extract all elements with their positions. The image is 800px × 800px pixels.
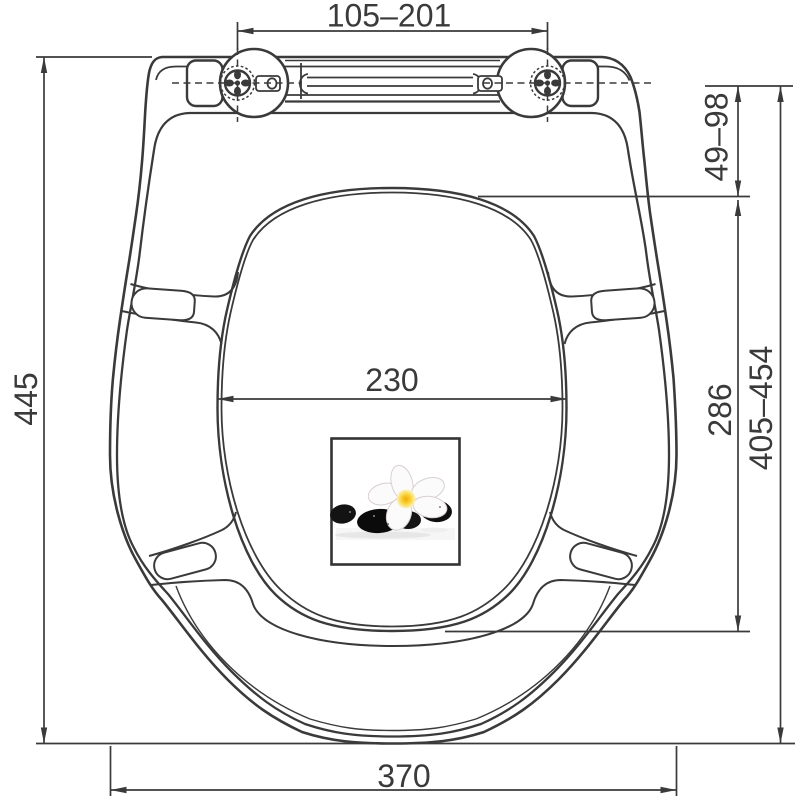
svg-text:230: 230 [365, 362, 418, 398]
svg-text:49–98: 49–98 [699, 93, 735, 182]
svg-text:445: 445 [8, 372, 44, 425]
svg-text:286: 286 [702, 383, 738, 436]
svg-text:405–454: 405–454 [743, 346, 779, 471]
svg-text:105–201: 105–201 [327, 0, 452, 34]
svg-text:370: 370 [377, 758, 430, 794]
